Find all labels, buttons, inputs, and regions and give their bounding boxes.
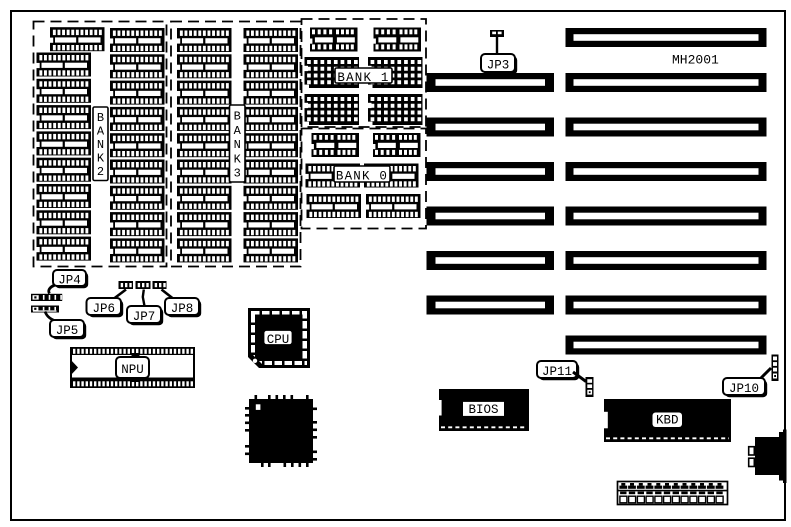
svg-text:BANK 0: BANK 0 xyxy=(336,169,388,183)
svg-text:K: K xyxy=(97,152,105,166)
svg-text:3: 3 xyxy=(234,167,241,181)
svg-text:CPU: CPU xyxy=(267,333,290,347)
svg-text:NPU: NPU xyxy=(121,363,144,377)
svg-text:MH2001: MH2001 xyxy=(672,53,719,68)
svg-text:A: A xyxy=(97,125,105,139)
svg-text:B: B xyxy=(97,111,104,125)
svg-text:N: N xyxy=(234,138,241,152)
svg-text:JP3: JP3 xyxy=(487,58,510,72)
svg-text:JP6: JP6 xyxy=(92,302,115,316)
svg-text:JP4: JP4 xyxy=(58,273,81,287)
svg-text:A: A xyxy=(234,124,242,138)
svg-text:2: 2 xyxy=(97,165,104,179)
svg-text:KBD: KBD xyxy=(656,414,679,428)
svg-text:JP10: JP10 xyxy=(729,382,759,396)
svg-text:B: B xyxy=(234,110,241,124)
svg-text:JP11: JP11 xyxy=(542,365,572,379)
svg-text:JP8: JP8 xyxy=(171,302,194,316)
svg-text:JP7: JP7 xyxy=(133,310,156,324)
svg-text:BIOS: BIOS xyxy=(468,403,498,417)
svg-text:K: K xyxy=(234,152,242,166)
svg-text:JP5: JP5 xyxy=(56,324,79,338)
svg-text:BANK 1: BANK 1 xyxy=(337,71,389,85)
svg-text:N: N xyxy=(97,138,104,152)
